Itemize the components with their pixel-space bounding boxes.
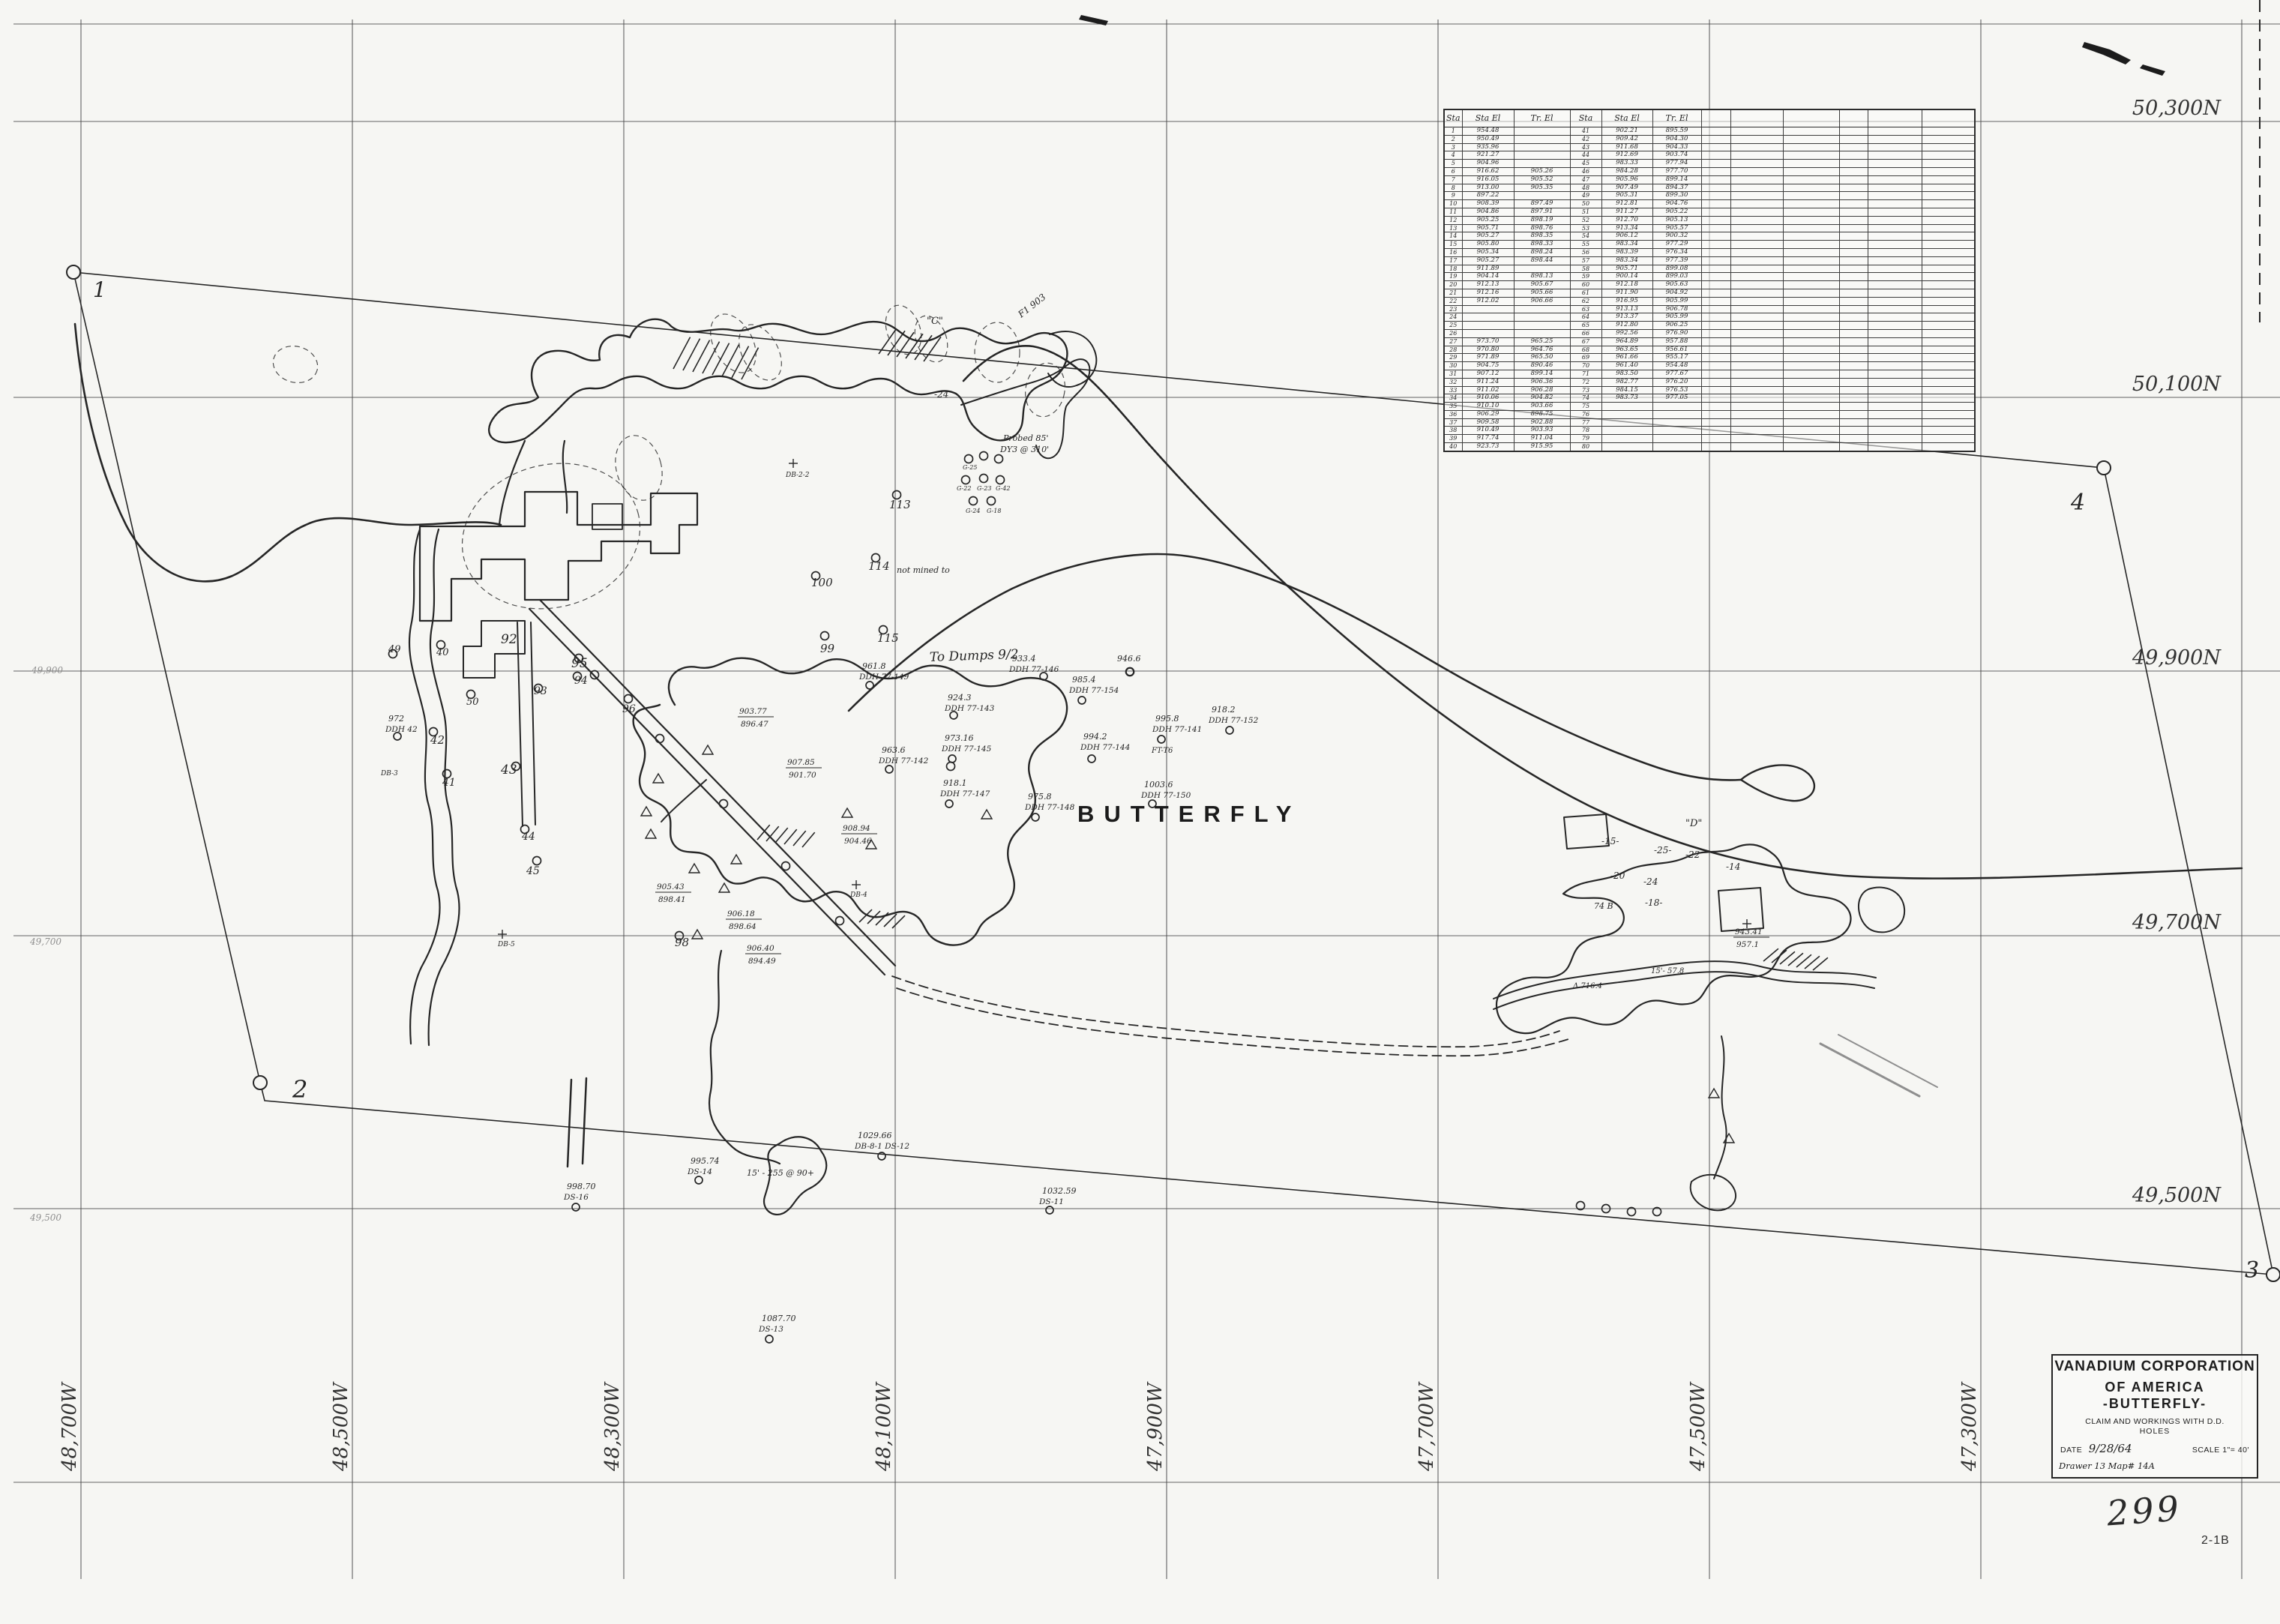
station-number-cell: 15 [1444,241,1462,249]
table-header-cell: Sta [1570,109,1601,127]
station-number-cell: 8 [1444,184,1462,192]
elevation-cell [1701,127,1730,136]
ddh-id-label: DDH 77-152 [1208,716,1259,725]
elevation-cell [1922,289,1975,297]
station-number-cell: 63 [1570,305,1601,313]
elevation-cell [1868,241,1922,249]
elevation-cell: 910.10 [1462,403,1514,411]
elevation-cell [1839,175,1868,184]
elevation-cell [1922,175,1975,184]
elevation-cell [1839,289,1868,297]
table-header-cell: Tr. El [1652,109,1701,127]
elevation-cell [1839,410,1868,418]
elevation-cell: 905.35 [1514,184,1570,192]
map-annotation: not mined to [897,565,950,575]
station-circle [821,632,829,640]
elevation-cell [1783,160,1839,168]
elevation-cell [1839,305,1868,313]
workings-path-east-lower-road-a [1494,961,1876,999]
elevation-cell [1868,265,1922,273]
map-annotation: DB-2-2 [785,472,810,479]
elevation-cell [1922,248,1975,256]
elevation-cell: 910.49 [1462,427,1514,435]
ddh-marker [866,682,873,689]
elevation-cell: 906.36 [1514,378,1570,386]
elevation-cell [1922,370,1975,378]
west-coordinate-label: 48,100W [873,1381,895,1472]
workings-path-haul-road-dashed-a [892,976,1559,1047]
elevation-cell [1701,305,1730,313]
map-annotation: 99 [820,642,835,655]
elevation-cell [1730,241,1783,249]
ddh-id-label: DDH 77-146 [1008,665,1059,674]
table-header-cell: Sta [1444,109,1462,127]
elevation-cell [1652,427,1701,435]
elevation-cell: 906.28 [1514,386,1570,394]
map-annotation: DB-3 [380,770,398,778]
station-circle [996,476,1005,484]
table-header-cell: Sta El [1462,109,1514,127]
workings-path-west-arm-a [409,529,440,1044]
elevation-cell [1701,208,1730,216]
elevation-cell [1701,297,1730,305]
station-number-cell: 11 [1444,208,1462,216]
ddh-elevation-label: 973.16 [945,733,974,743]
elevation-cell [1839,281,1868,289]
elevation-cell [1839,241,1868,249]
elevation-cell: 906.66 [1514,297,1570,305]
table-header-cell [1922,109,1975,127]
elevation-cell [1922,297,1975,305]
west-coordinate-label: 47,500W [1687,1381,1709,1472]
elevation-cell: 911.68 [1601,143,1652,151]
elevation-cell [1868,435,1922,443]
elevation-cell: 983.34 [1601,256,1652,265]
elevation-cell: 976.90 [1652,329,1701,337]
north-coordinate-label: 50,100N [2132,373,2222,396]
elevation-cell [1783,241,1839,249]
elevation-cell [1730,256,1783,265]
stope-triangle-symbol [842,808,852,817]
station-number-cell: 13 [1444,224,1462,232]
ddh-id-label: DDH 42 [385,725,418,734]
elevation-cell [1783,418,1839,427]
elevation-cell: 902.21 [1601,127,1652,136]
west-coordinate-label: 47,700W [1416,1381,1438,1472]
elevation-cell [1922,151,1975,160]
station-number-cell: 53 [1570,224,1601,232]
map-annotation: -22 [1685,849,1700,860]
elevation-cell [1922,418,1975,427]
station-number-cell: 42 [1570,135,1601,143]
elevation-cell [1730,394,1783,403]
claim-corner-label: 4 [2070,490,2085,516]
elevation-cell [1701,232,1730,241]
elevation-cell [1783,143,1839,151]
elevation-cell: 911.04 [1514,435,1570,443]
elevation-cell: 957.88 [1652,337,1701,346]
elevation-cell [1839,248,1868,256]
elevation-cell [1839,256,1868,265]
elevation-cell [1839,362,1868,370]
map-annotation: Probed 85' [1002,433,1048,443]
elevation-cell [1839,329,1868,337]
elevation-cell [1839,200,1868,208]
elevation-cell: 983.39 [1601,248,1652,256]
elevation-cell: 905.80 [1462,241,1514,249]
elevation-cell: 961.40 [1601,362,1652,370]
workings-path-vertical-drift-b [531,622,535,825]
elevation-cell: 977.67 [1652,370,1701,378]
dashed-ellipse-outline [730,317,790,387]
hatch-tick-mark [793,831,806,846]
elevation-cell [1730,386,1783,394]
station-elevation-table: StaSta ElTr. ElStaSta ElTr. El1954.48419… [1443,109,1976,452]
elevation-cell [1783,313,1839,322]
station-number-cell: 37 [1444,418,1462,427]
elevation-cell [1868,200,1922,208]
station-number-cell: 49 [1570,192,1601,200]
elevation-cell [1868,337,1922,346]
station-number-cell: 54 [1570,232,1601,241]
elevation-cell [1701,135,1730,143]
ddh-marker [572,1203,580,1211]
elevation-cell: 906.25 [1652,322,1701,330]
elevation-cell [1514,135,1570,143]
map-annotation: 95 [571,656,588,671]
elevation-cell [1701,256,1730,265]
ddh-id-label: DDH 77-150 [1140,791,1191,800]
ink-mark [2140,64,2165,76]
ddh-marker [1158,736,1165,743]
company-name-line1: VANADIUM CORPORATION [2053,1359,2257,1375]
elevation-cell: 915.95 [1514,443,1570,451]
claim-boundary-line [260,1083,2273,1275]
elevation-cell: 905.27 [1462,232,1514,241]
elevation-cell [1514,322,1570,330]
map-annotation: 98 [675,936,689,949]
elevation-cell [1783,435,1839,443]
elevation-cell [1730,224,1783,232]
dashed-ellipse-outline [269,341,322,388]
workings-path-incline-spur [661,780,706,822]
elevation-cell [1730,410,1783,418]
station-number-cell: 50 [1570,200,1601,208]
elevation-cell [1783,200,1839,208]
ddh-id-label: DS-14 [687,1167,712,1176]
elevation-cell [1701,410,1730,418]
elevation-cell [1839,273,1868,281]
map-name: -BUTTERFLY- [2053,1396,2257,1412]
elevation-cell [1701,281,1730,289]
north-coordinate-label: 49,500N [2132,1184,2222,1207]
station-circle [965,455,973,463]
elevation-cell [1783,443,1839,451]
company-name-line2: OF AMERICA [2053,1380,2257,1395]
elevation-cell [1868,160,1922,168]
date-label: DATE [2060,1446,2082,1455]
hatch-tick-mark [722,345,739,376]
west-coordinate-label: 48,300W [601,1381,624,1472]
workings-path-stope-tail [709,951,780,1164]
elevation-cell: 906.78 [1652,305,1701,313]
elevation-cell [1783,427,1839,435]
elevation-cell [1514,305,1570,313]
elevation-cell: 913.34 [1601,224,1652,232]
elevation-cell [1839,394,1868,403]
claim-boundary-line [73,272,260,1083]
elevation-cell: 911.02 [1462,386,1514,394]
elevation-cell [1922,208,1975,216]
elevation-cell [1701,443,1730,451]
stope-triangle-symbol [689,864,700,873]
elevation-cell [1868,362,1922,370]
elevation-cell: 912.70 [1601,216,1652,224]
elevation-cell [1730,378,1783,386]
station-number-cell: 66 [1570,329,1601,337]
elevation-cell [1601,427,1652,435]
map-annotation: 15'- 57.8 [1651,967,1684,975]
station-number-cell: 73 [1570,386,1601,394]
elevation-cell: 898.19 [1514,216,1570,224]
elevation-cell: 905.99 [1652,313,1701,322]
elevation-cell [1922,427,1975,435]
elevation-cell [1783,289,1839,297]
elevation-cell [1922,273,1975,281]
elevation-cell [1868,192,1922,200]
ddh-marker [1226,727,1233,734]
elevation-cell [1922,403,1975,411]
elevation-cell [1868,167,1922,175]
map-annotation: DY3 @ 310' [999,445,1049,454]
station-number-cell: 52 [1570,216,1601,224]
stope-triangle-symbol [646,829,656,838]
elevation-cell [1701,184,1730,192]
station-number-cell: 48 [1570,184,1601,192]
elevation-cell [1868,410,1922,418]
table-header-cell [1868,109,1922,127]
elevation-cell [1868,175,1922,184]
elevation-cell: 904.30 [1652,135,1701,143]
scanned-claim-map-sheet: 50,300N50,100N49,900N49,700N49,500N48,70… [0,0,2280,1624]
elevation-cell: 977.05 [1652,394,1701,403]
elevation-cell [1783,305,1839,313]
elev-pair-top: 903.77 [739,707,767,716]
map-annotation: FT-T6 [1151,747,1173,755]
elevation-cell [1922,184,1975,192]
elevation-cell [1701,151,1730,160]
elevation-cell: 900.14 [1601,273,1652,281]
station-number-cell: 77 [1570,418,1601,427]
elev-pair-top: 906.40 [747,944,774,953]
elevation-cell [1922,410,1975,418]
ddh-elevation-label: 998.70 [567,1182,596,1191]
station-number-cell: 80 [1570,443,1601,451]
elevation-cell [1783,394,1839,403]
table-header-cell [1783,109,1839,127]
elevation-cell [1868,386,1922,394]
stope-triangle-symbol [731,855,742,864]
elevation-cell [1783,135,1839,143]
station-number-cell: 20 [1444,281,1462,289]
station-number-cell: 59 [1570,273,1601,281]
stope-triangle-symbol [703,745,713,754]
elevation-cell [1868,127,1922,136]
map-annotation: G-22 [957,485,971,492]
ddh-marker [948,755,956,763]
workings-path-central-rooms [420,492,697,621]
ddh-marker [1032,813,1039,821]
elevation-cell [1922,354,1975,362]
north-coordinate-label: 50,300N [2132,97,2222,120]
map-annotation: 42 [430,733,445,747]
elevation-cell [1730,151,1783,160]
elevation-cell [1783,208,1839,216]
ddh-elevation-label: 994.2 [1083,732,1107,742]
stope-triangle-symbol [1709,1089,1719,1098]
elevation-cell: 923.73 [1462,443,1514,451]
station-circle [720,800,728,808]
elevation-cell [1462,305,1514,313]
elevation-cell [1783,370,1839,378]
map-annotation: 92 [501,632,517,647]
date-field: DATE 9/28/64 [2060,1442,2132,1456]
elevation-cell: 897.91 [1514,208,1570,216]
elevation-cell [1868,273,1922,281]
elevation-cell: 916.05 [1462,175,1514,184]
elevation-table-grid: StaSta ElTr. ElStaSta ElTr. El1954.48419… [1443,109,1976,452]
elevation-cell [1601,435,1652,443]
station-number-cell: 57 [1570,256,1601,265]
elevation-cell: 905.34 [1462,248,1514,256]
workings-path-east-nub [1859,888,1904,933]
elev-pair-bottom: 898.41 [658,895,686,904]
elevation-cell [1730,427,1783,435]
elevation-cell: 912.02 [1462,297,1514,305]
map-annotation: 100 [811,576,833,589]
map-annotation: 113 [889,498,911,511]
elevation-cell: 905.26 [1514,167,1570,175]
elevation-cell: 904.33 [1652,143,1701,151]
ddh-marker [695,1176,703,1184]
elevation-cell [1730,281,1783,289]
claim-corner-marker [2267,1268,2280,1281]
elevation-cell: 899.14 [1652,175,1701,184]
elevation-cell: 894.37 [1652,184,1701,192]
elevation-cell [1922,443,1975,451]
station-circle [969,497,978,505]
elevation-cell: 906.29 [1462,410,1514,418]
elevation-cell [1701,418,1730,427]
west-coordinate-label: 47,900W [1144,1381,1167,1472]
elevation-cell [1839,167,1868,175]
elevation-cell: 965.50 [1514,354,1570,362]
ddh-elevation-label: 972 [388,714,404,724]
scale-field: SCALE 1"= 40' [2192,1446,2249,1455]
elevation-cell [1783,127,1839,136]
elevation-cell [1514,127,1570,136]
elevation-cell [1839,184,1868,192]
ddh-id-label: DDH 77-154 [1068,686,1119,695]
elevation-cell: 904.76 [1652,200,1701,208]
elevation-cell [1868,427,1922,435]
elevation-cell [1701,273,1730,281]
station-number-cell: 46 [1570,167,1601,175]
elevation-cell [1601,443,1652,451]
elevation-cell: 908.39 [1462,200,1514,208]
map-annotation: 45 [526,865,540,877]
claim-corner-marker [67,265,80,279]
elevation-cell: 964.76 [1514,346,1570,354]
map-annotation: G-25 [963,464,977,471]
station-number-cell: 75 [1570,403,1601,411]
elevation-cell: 905.63 [1652,281,1701,289]
elevation-cell [1839,418,1868,427]
elevation-cell [1730,346,1783,354]
elevation-cell: 905.99 [1652,297,1701,305]
map-annotation: -25- [1654,845,1671,855]
elevation-cell [1868,143,1922,151]
map-annotation: "D" [1685,818,1702,829]
map-annotation: G-18 [987,508,1001,514]
station-number-cell: 71 [1570,370,1601,378]
station-number-cell: 34 [1444,394,1462,403]
station-circle [987,497,996,505]
station-number-cell: 41 [1570,127,1601,136]
elevation-cell [1601,403,1652,411]
elevation-cell [1868,394,1922,403]
elevation-cell: 898.13 [1514,273,1570,281]
elevation-cell: 905.52 [1514,175,1570,184]
station-number-cell: 30 [1444,362,1462,370]
elevation-cell [1839,143,1868,151]
elevation-cell [1868,418,1922,427]
elevation-cell: 992.56 [1601,329,1652,337]
station-circle [980,475,988,483]
elevation-cell [1701,224,1730,232]
ddh-marker [1078,697,1086,704]
elevation-cell [1730,160,1783,168]
elevation-cell: 911.89 [1462,265,1514,273]
elevation-cell: 956.61 [1652,346,1701,354]
elevation-cell: 935.96 [1462,143,1514,151]
elevation-cell: 983.50 [1601,370,1652,378]
elevation-cell: 984.28 [1601,167,1652,175]
elevation-cell [1922,216,1975,224]
elevation-cell [1868,346,1922,354]
elevation-cell [1922,322,1975,330]
elevation-cell: 912.69 [1601,151,1652,160]
elevation-cell: 950.49 [1462,135,1514,143]
elevation-cell [1868,322,1922,330]
elev-pair-top: 905.43 [657,882,685,891]
elevation-cell [1730,313,1783,322]
workings-path-haul-road-dashed-b [897,988,1568,1056]
station-number-cell: 74 [1570,394,1601,403]
station-number-cell: 9 [1444,192,1462,200]
map-annotation: Δ 716.4 [1572,982,1602,990]
elevation-cell: 909.58 [1462,418,1514,427]
workings-path-trench-a [568,1080,571,1167]
scale-value: 1"= 40' [2222,1446,2249,1455]
elevation-cell [1701,143,1730,151]
map-annotation: -18- [1645,897,1662,908]
elevation-cell: 903.93 [1514,427,1570,435]
elevation-cell [1839,135,1868,143]
elevation-cell [1730,435,1783,443]
station-number-cell: 65 [1570,322,1601,330]
elevation-cell: 976.53 [1652,386,1701,394]
